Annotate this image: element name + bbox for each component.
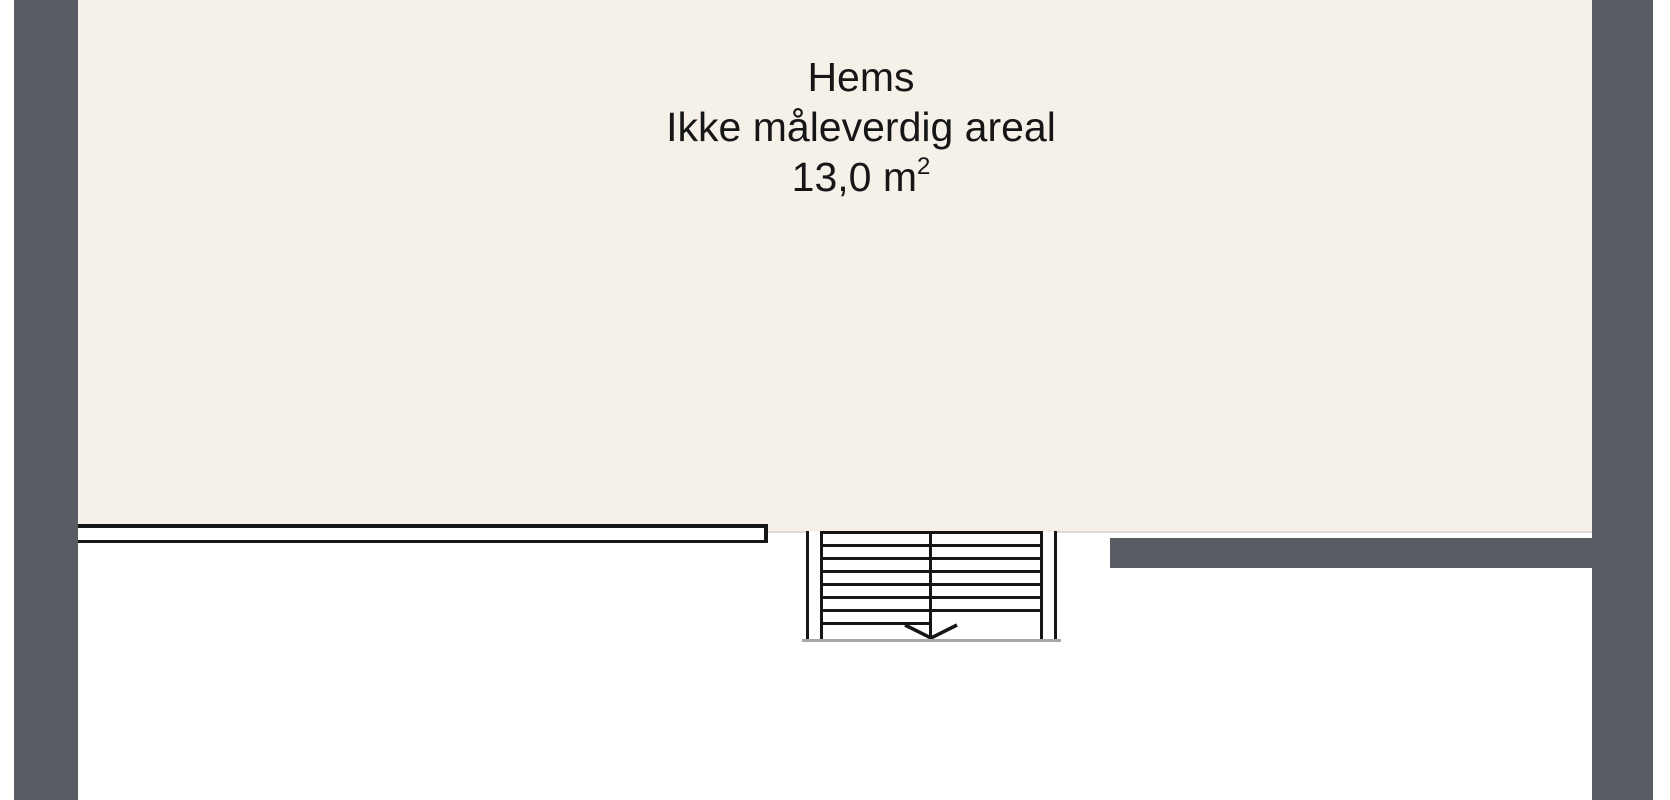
guard-railing xyxy=(78,524,768,543)
stair-base-line xyxy=(802,639,1061,642)
room-area-value: 13,0 m xyxy=(792,154,917,200)
staircase xyxy=(806,531,1057,643)
right-exterior-wall xyxy=(1592,0,1653,800)
room-note: Ikke måleverdig areal xyxy=(601,102,1121,152)
stair-newel-right xyxy=(1040,531,1057,640)
room-area-exponent: 2 xyxy=(917,153,930,180)
stair-newel-left xyxy=(806,531,823,640)
stair-flight-left xyxy=(823,534,929,629)
room-name: Hems xyxy=(601,52,1121,102)
left-exterior-wall xyxy=(14,0,78,800)
stair-flight-right xyxy=(932,534,1040,619)
lower-wall-segment xyxy=(1110,538,1592,568)
floor-plan: Hems Ikke måleverdig areal 13,0 m2 xyxy=(0,0,1670,800)
room-label: Hems Ikke måleverdig areal 13,0 m2 xyxy=(601,52,1121,202)
room-area: 13,0 m2 xyxy=(601,152,1121,202)
